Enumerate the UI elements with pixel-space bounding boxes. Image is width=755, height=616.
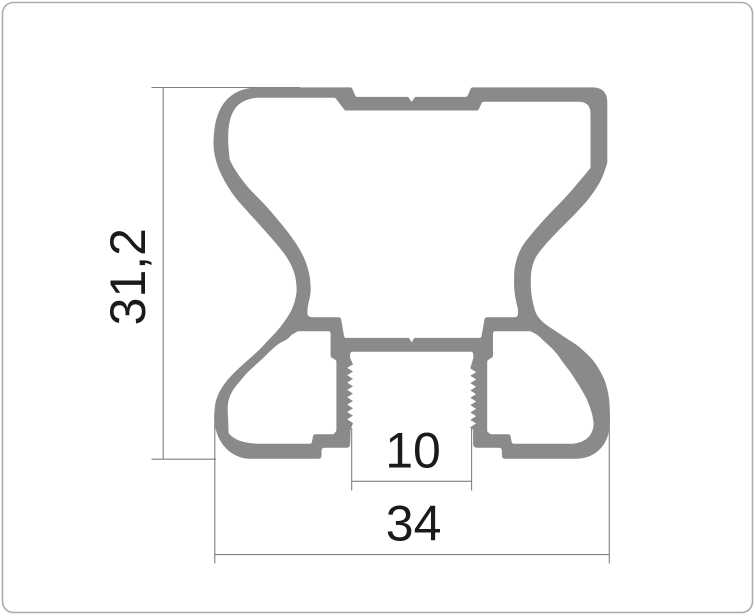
svg-text:31,2: 31,2 [100,228,156,325]
svg-text:34: 34 [386,495,442,551]
svg-text:10: 10 [385,422,441,478]
